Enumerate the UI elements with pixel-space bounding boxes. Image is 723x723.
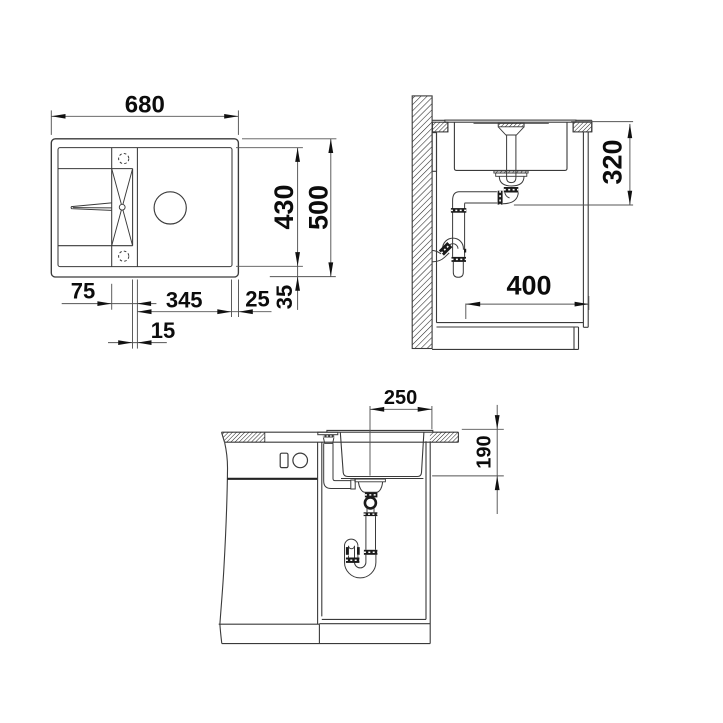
svg-text:15: 15	[151, 318, 175, 343]
svg-text:250: 250	[384, 387, 417, 409]
svg-text:25: 25	[245, 287, 269, 312]
svg-text:320: 320	[598, 139, 628, 184]
svg-text:430: 430	[269, 184, 299, 229]
svg-text:400: 400	[506, 271, 551, 301]
svg-text:500: 500	[303, 185, 333, 230]
svg-text:35: 35	[272, 285, 297, 309]
svg-text:190: 190	[474, 435, 496, 468]
svg-text:75: 75	[71, 279, 95, 304]
svg-text:345: 345	[166, 287, 203, 312]
svg-text:680: 680	[125, 92, 165, 119]
